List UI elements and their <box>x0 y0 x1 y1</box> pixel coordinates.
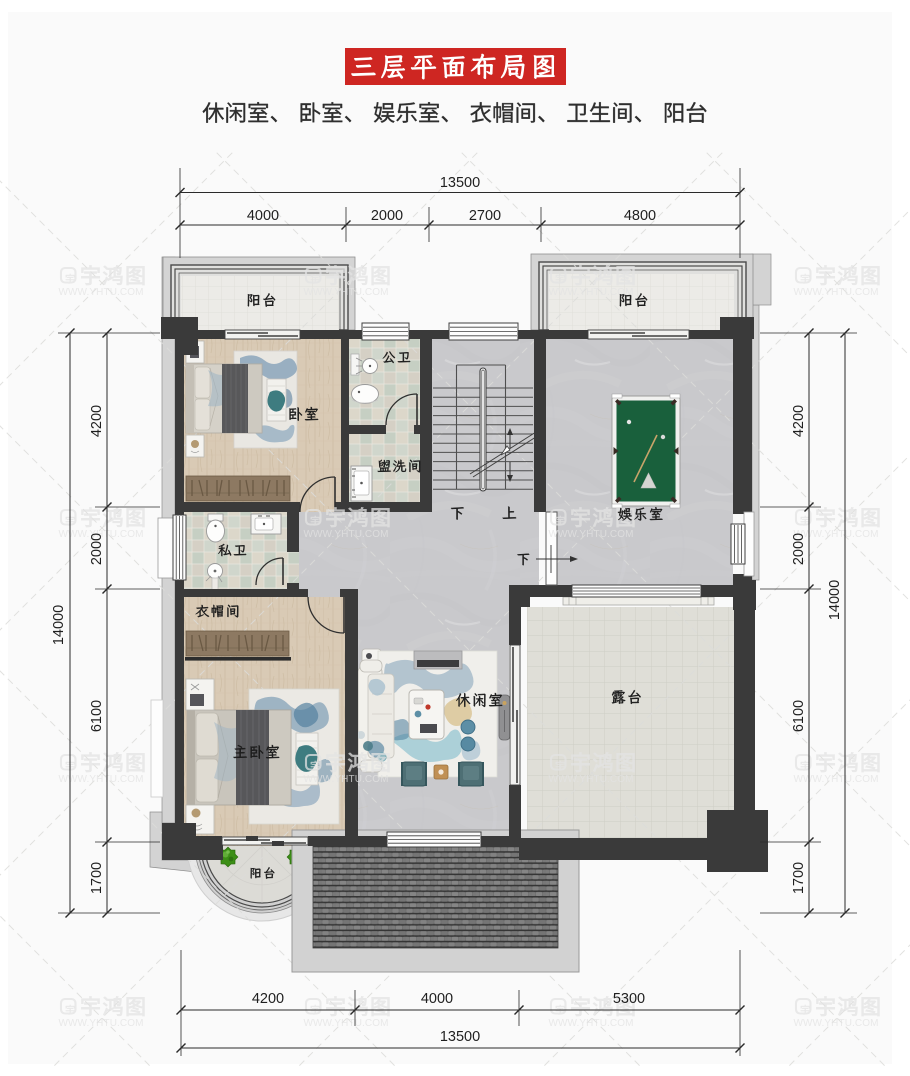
svg-text:4200: 4200 <box>252 991 284 1007</box>
svg-text:2000: 2000 <box>371 208 403 224</box>
svg-text:4000: 4000 <box>421 991 453 1007</box>
svg-text:13500: 13500 <box>440 1029 480 1045</box>
svg-text:6100: 6100 <box>791 700 807 732</box>
svg-text:1700: 1700 <box>791 862 807 894</box>
svg-text:14000: 14000 <box>51 605 67 645</box>
svg-text:6100: 6100 <box>89 700 105 732</box>
svg-text:5300: 5300 <box>613 991 645 1007</box>
svg-text:4200: 4200 <box>791 405 807 437</box>
svg-text:2000: 2000 <box>791 533 807 565</box>
svg-text:4000: 4000 <box>247 208 279 224</box>
svg-text:1700: 1700 <box>89 862 105 894</box>
svg-text:2000: 2000 <box>89 533 105 565</box>
svg-text:13500: 13500 <box>440 175 480 191</box>
svg-text:2700: 2700 <box>469 208 501 224</box>
svg-text:4800: 4800 <box>624 208 656 224</box>
svg-text:4200: 4200 <box>89 405 105 437</box>
svg-text:14000: 14000 <box>827 580 843 620</box>
